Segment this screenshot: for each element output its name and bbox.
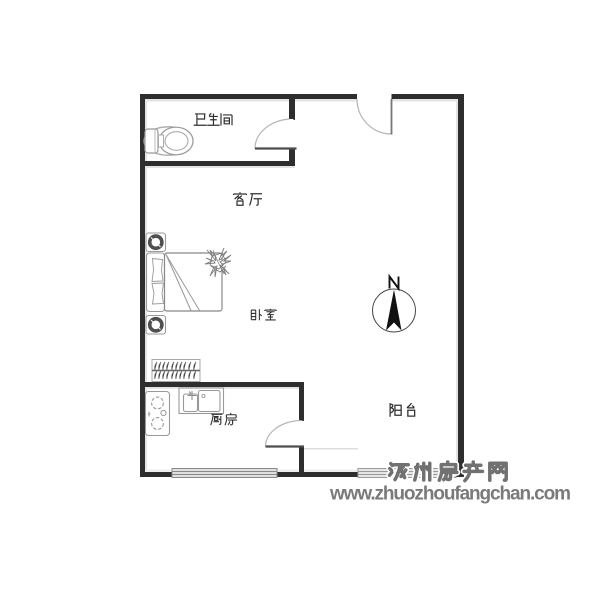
svg-text:www.zhuozhoufangchan.com: www.zhuozhoufangchan.com (329, 484, 570, 505)
